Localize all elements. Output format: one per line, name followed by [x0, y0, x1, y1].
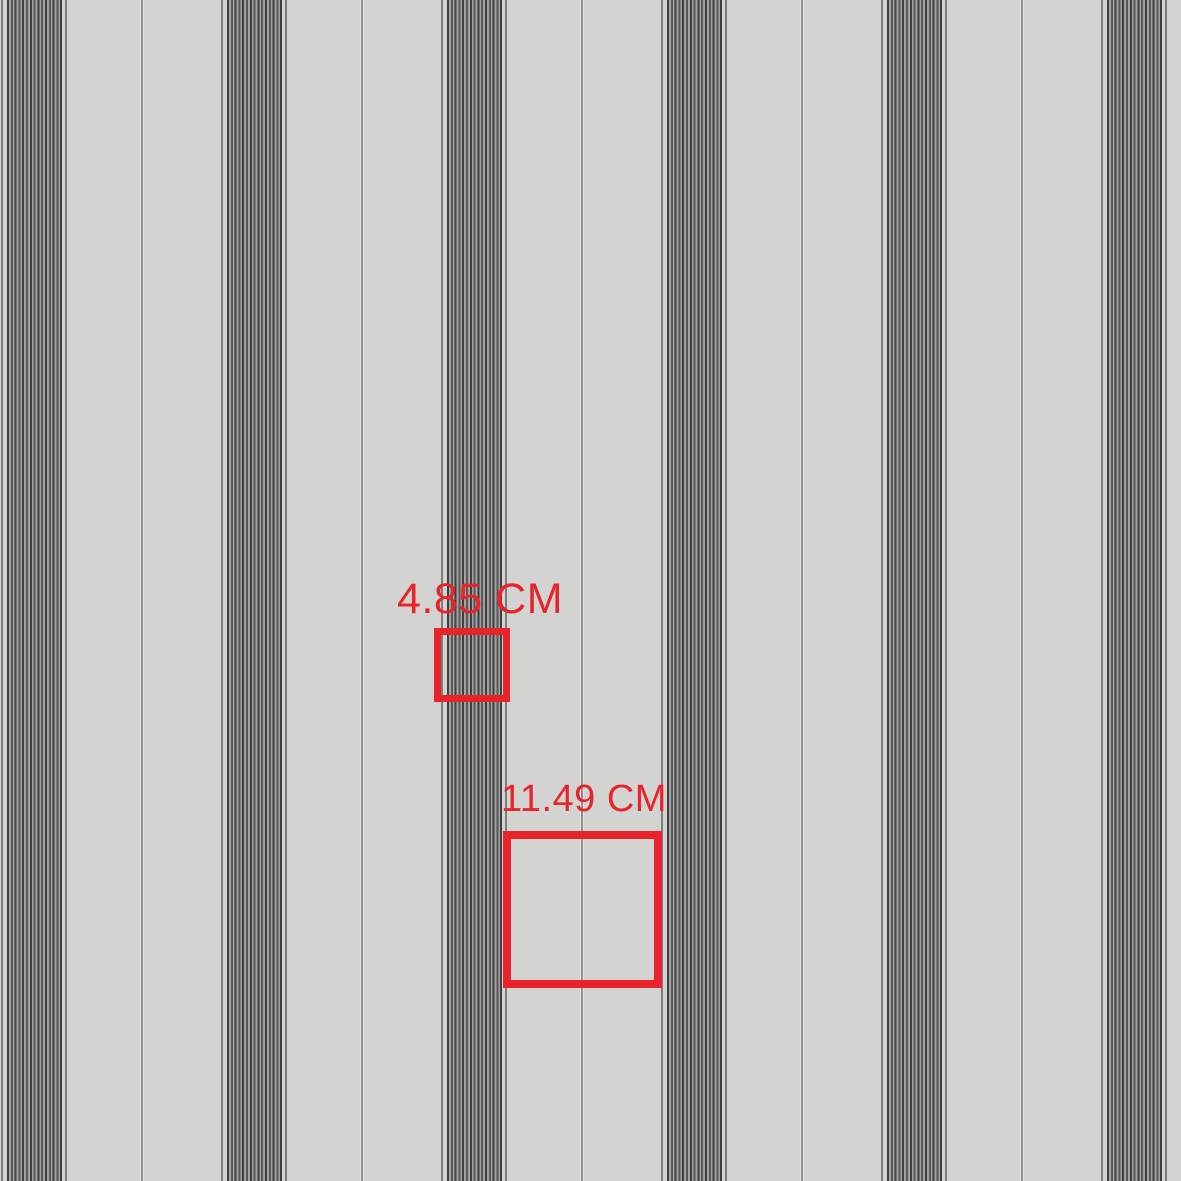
stripe-edge-line	[1165, 0, 1167, 1181]
pinstripe-line	[1021, 0, 1023, 1181]
stripe-edge-line	[661, 0, 663, 1181]
pattern-preview: 4.85 CM 11.49 CM	[0, 0, 1181, 1181]
stripe-group	[1101, 0, 1167, 1181]
stripe-group	[661, 0, 727, 1181]
stripe-group	[881, 0, 947, 1181]
stripe-edge-line	[945, 0, 947, 1181]
stripe-edge-line	[881, 0, 883, 1181]
scale-box-small	[434, 628, 510, 702]
stripe-group	[1, 0, 67, 1181]
stripe-edge-line	[65, 0, 67, 1181]
stripe-band	[667, 0, 722, 1181]
stripe-group	[221, 0, 287, 1181]
stripe-band	[887, 0, 942, 1181]
pinstripe-line	[141, 0, 143, 1181]
pinstripe-line	[801, 0, 803, 1181]
stripe-band	[227, 0, 282, 1181]
scale-label-large: 11.49 CM	[501, 780, 667, 818]
stripe-pattern	[0, 0, 1181, 1181]
stripe-edge-line	[221, 0, 223, 1181]
stripe-edge-line	[1101, 0, 1103, 1181]
scale-box-large	[503, 831, 662, 988]
stripe-band	[1107, 0, 1162, 1181]
scale-label-small: 4.85 CM	[397, 578, 563, 621]
stripe-edge-line	[1, 0, 3, 1181]
pinstripe-line	[361, 0, 363, 1181]
stripe-band	[7, 0, 62, 1181]
pinstripe-line	[581, 0, 583, 1181]
stripe-edge-line	[725, 0, 727, 1181]
stripe-edge-line	[285, 0, 287, 1181]
